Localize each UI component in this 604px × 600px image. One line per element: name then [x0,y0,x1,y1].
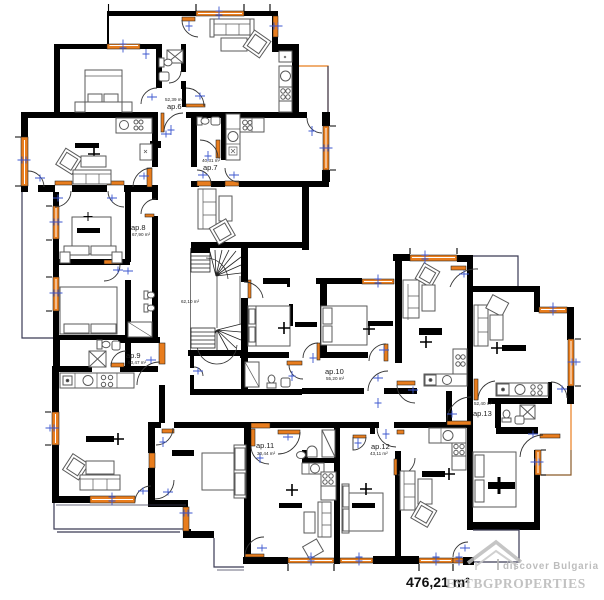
svg-text:ap.10: ap.10 [325,367,344,376]
svg-text:30,44 m²: 30,44 m² [257,451,276,456]
svg-text:ap.7: ap.7 [203,163,218,172]
svg-text:67,90 m²: 67,90 m² [132,232,151,237]
svg-text:62,10 m²: 62,10 m² [181,299,200,304]
svg-text:63,47 m²: 63,47 m² [128,360,147,365]
svg-text:ap.13: ap.13 [473,409,492,418]
svg-text:ap.9: ap.9 [126,351,141,360]
svg-text:ap.6: ap.6 [167,102,182,111]
svg-text:discover Bulgaria: discover Bulgaria [503,561,599,572]
svg-text:52,40 m²: 52,40 m² [474,401,493,406]
svg-text:43,11 m²: 43,11 m² [370,451,388,456]
svg-text:55,20 m²: 55,20 m² [326,376,345,381]
svg-text:ESTBGPROPERTIES: ESTBGPROPERTIES [446,576,586,591]
svg-text:ap.12: ap.12 [371,442,390,451]
svg-text:ap.11: ap.11 [256,441,274,450]
svg-text:ap.8: ap.8 [131,223,146,232]
